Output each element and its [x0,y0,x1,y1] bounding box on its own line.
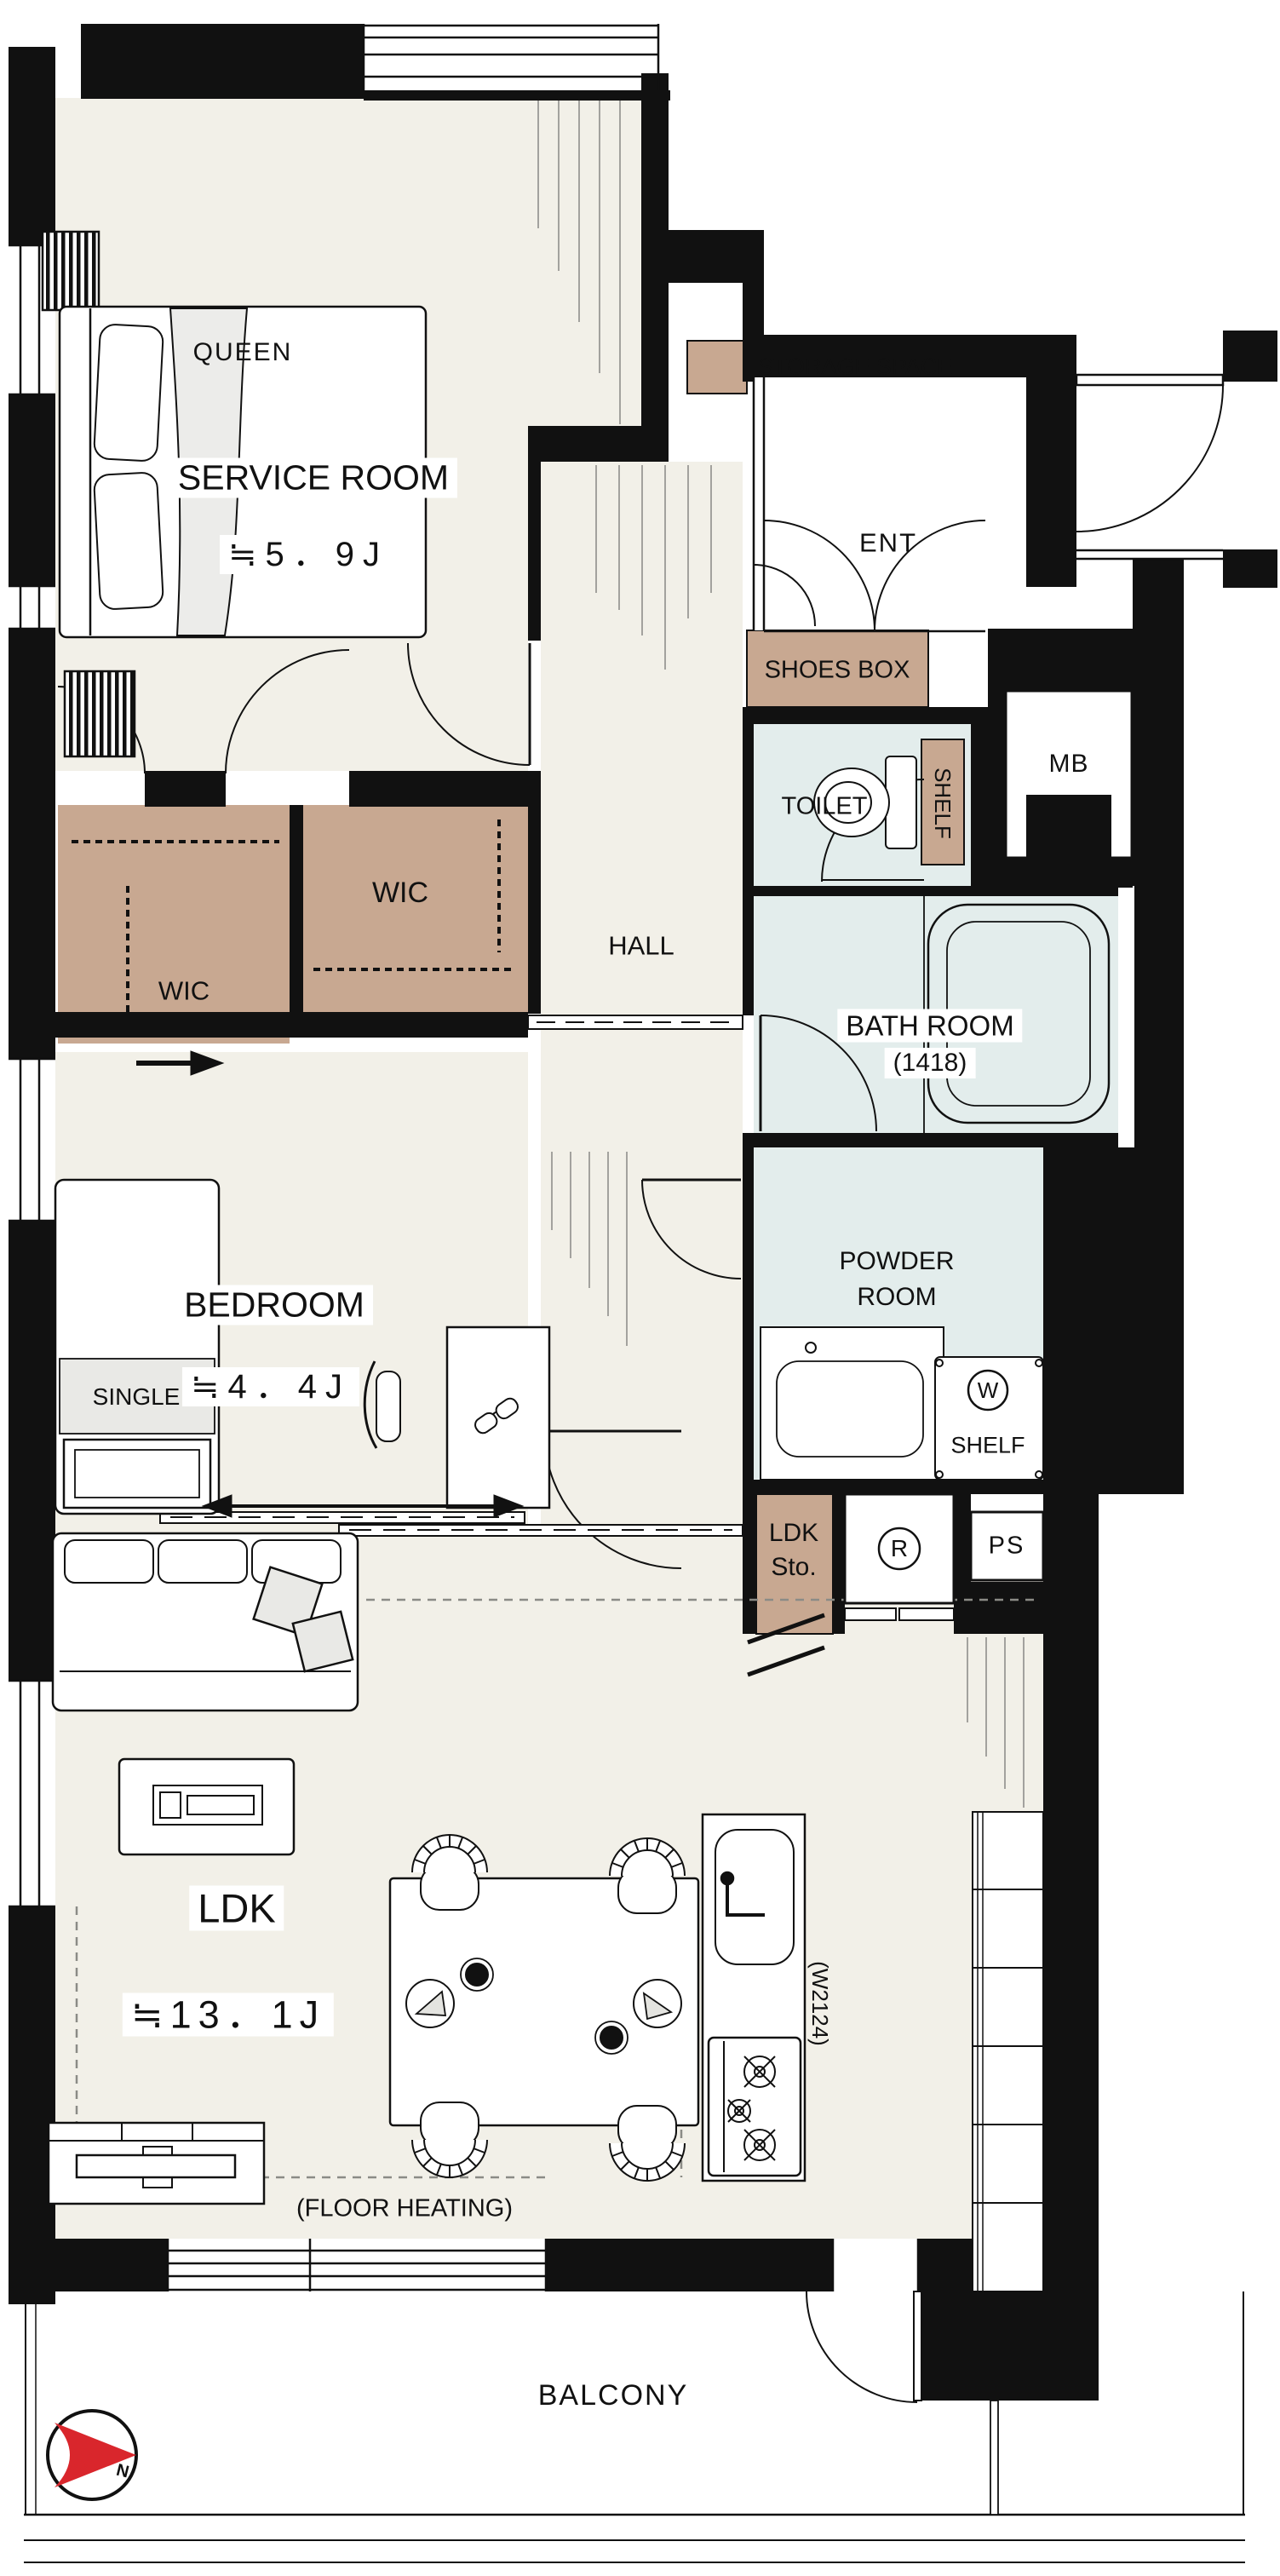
kitchen-counter [703,1814,805,2181]
kitchen-closet [973,1812,1043,2291]
legend-swatch [687,341,747,394]
fridge-label: R [891,1537,908,1561]
room-label-service: SERVICE ROOM [169,458,457,498]
powder-shelf-label: SHELF [950,1435,1025,1458]
wic-right-area [303,805,528,1014]
tv-board [49,2123,264,2204]
floor-plan: STORAGE SPACE QUEEN SERVICE ROOM ≒5．9J E… [0,0,1280,2576]
stove [709,2038,801,2176]
room-label-mb: MB [1049,751,1089,777]
louver-panel-top [43,232,99,310]
ps-label: PS [989,1534,1025,1559]
room-label-bath: BATH ROOM [837,1009,1022,1043]
room-size-bedroom: ≒4．4J [182,1367,359,1406]
sofa [53,1533,358,1711]
balcony-label: BALCONY [538,2381,689,2410]
floor-heating-label: (FLOOR HEATING) [296,2197,513,2222]
room-label-ent: ENT [859,530,917,556]
louver-panel-bottom [65,671,135,756]
queen-bed-label: QUEEN [193,340,293,365]
washer-label: W [978,1379,999,1401]
room-label-bedroom: BEDROOM [175,1285,373,1325]
room-label-toilet: TOILET [782,795,868,819]
washer-pan [935,1357,1043,1480]
room-size-bath: (1418) [885,1048,976,1078]
low-table [119,1759,294,1854]
toilet-shelf-label: SHELF [932,768,954,839]
kitchen-width-label: (W2124) [809,1961,831,2046]
legend-storage-label: STORAGE SPACE [758,356,953,379]
wic-right-label: WIC [372,878,428,907]
ldk-sto-label-1: LDK [769,1521,818,1546]
shoes-box-label: SHOES BOX [765,658,910,683]
powder-sink [761,1327,944,1480]
room-label-ldk: LDK [189,1886,284,1931]
room-label-powder-1: POWDER [840,1249,955,1274]
room-size-service: ≒5．9J [220,535,397,574]
single-bed [55,1180,219,1514]
room-label-hall: HALL [608,933,674,959]
compass [48,2411,136,2499]
wic-left-label: WIC [158,978,210,1004]
room-size-ldk: ≒13．1J [123,1993,334,2037]
balcony-partition [990,2401,998,2515]
room-label-powder-2: ROOM [857,1285,936,1310]
ldk-sto-label-2: Sto. [771,1555,816,1580]
single-bed-label: SINGLE [93,1385,181,1409]
